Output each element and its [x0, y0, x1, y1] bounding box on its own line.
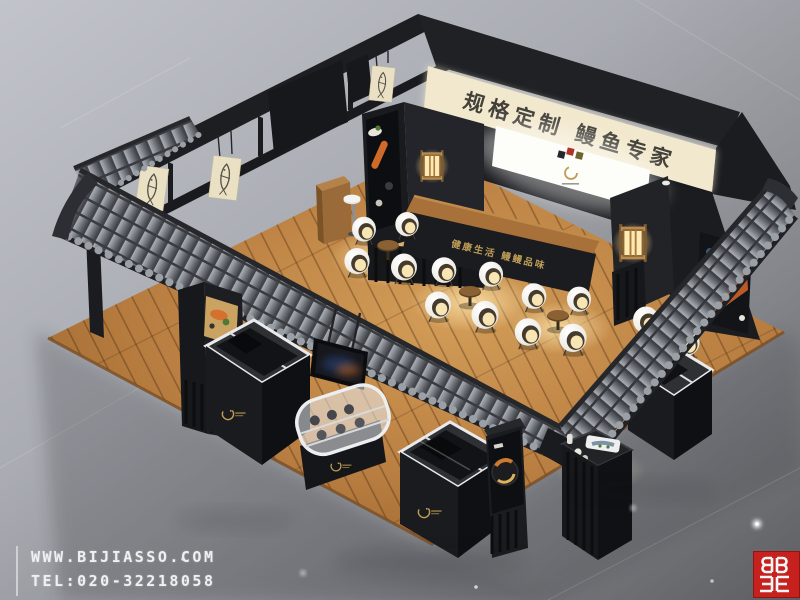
food-poster-center — [366, 110, 402, 232]
watermark-website: WWW.BIJIASSO.COM — [31, 548, 216, 566]
poster-pillar-front — [484, 418, 528, 558]
booth-render-scene: 规格定制 鳗鱼专家 健 — [0, 0, 800, 600]
bijiasso-logo — [753, 551, 800, 598]
watermark: WWW.BIJIASSO.COM TEL:020-32218058 — [0, 540, 300, 600]
watermark-phone: TEL:020-32218058 — [31, 572, 216, 590]
dish-poster — [488, 430, 524, 514]
scene-canvas: 规格定制 鳗鱼专家 健 — [0, 0, 800, 600]
teacup — [662, 181, 670, 186]
watermark-divider — [16, 546, 18, 596]
japanese-lantern-center — [415, 149, 450, 184]
fish-print-banner — [369, 66, 395, 103]
japanese-lantern-right — [612, 222, 653, 263]
wood-cabinet — [316, 176, 352, 244]
fish-print-banner — [209, 155, 242, 200]
